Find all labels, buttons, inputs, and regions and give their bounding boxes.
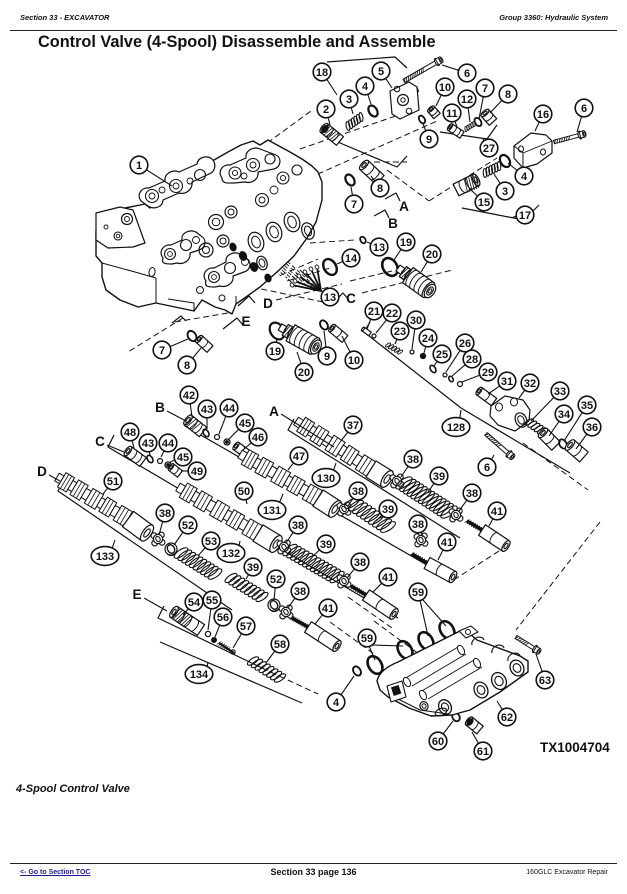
- svg-text:63: 63: [539, 675, 551, 687]
- svg-text:12: 12: [461, 94, 473, 106]
- svg-text:51: 51: [107, 476, 119, 488]
- svg-text:7: 7: [482, 83, 488, 95]
- svg-text:2: 2: [323, 104, 329, 116]
- svg-text:37: 37: [347, 420, 359, 432]
- svg-text:3: 3: [502, 186, 508, 198]
- svg-text:38: 38: [354, 557, 366, 569]
- svg-text:45: 45: [177, 452, 189, 464]
- svg-text:E: E: [241, 314, 250, 329]
- svg-text:53: 53: [205, 536, 217, 548]
- svg-text:A: A: [399, 199, 409, 214]
- svg-text:7: 7: [351, 199, 357, 211]
- svg-text:3: 3: [346, 94, 352, 106]
- svg-text:38: 38: [412, 519, 424, 531]
- svg-text:38: 38: [352, 486, 364, 498]
- svg-text:13: 13: [324, 292, 336, 304]
- svg-text:60: 60: [432, 736, 444, 748]
- svg-text:13: 13: [373, 242, 385, 254]
- svg-text:24: 24: [422, 333, 435, 345]
- svg-text:11: 11: [446, 108, 458, 120]
- svg-text:30: 30: [410, 315, 422, 327]
- svg-text:128: 128: [447, 422, 465, 434]
- svg-text:17: 17: [519, 210, 531, 222]
- svg-text:62: 62: [501, 712, 513, 724]
- svg-text:59: 59: [361, 633, 373, 645]
- svg-text:D: D: [37, 464, 47, 479]
- svg-text:14: 14: [345, 253, 358, 265]
- svg-text:34: 34: [558, 409, 571, 421]
- svg-text:39: 39: [382, 504, 394, 516]
- svg-text:50: 50: [238, 486, 250, 498]
- svg-text:15: 15: [478, 197, 490, 209]
- svg-text:19: 19: [400, 237, 412, 249]
- svg-text:4: 4: [333, 697, 340, 709]
- svg-text:20: 20: [426, 249, 438, 261]
- svg-text:131: 131: [263, 505, 281, 517]
- svg-text:6: 6: [484, 462, 490, 474]
- svg-text:38: 38: [407, 454, 419, 466]
- svg-text:36: 36: [586, 422, 598, 434]
- svg-text:29: 29: [482, 367, 494, 379]
- svg-text:E: E: [132, 587, 141, 602]
- svg-text:47: 47: [293, 451, 305, 463]
- svg-text:7: 7: [159, 345, 165, 357]
- svg-text:27: 27: [483, 143, 495, 155]
- svg-text:25: 25: [436, 349, 448, 361]
- svg-text:38: 38: [159, 508, 171, 520]
- svg-text:48: 48: [124, 427, 136, 439]
- svg-text:42: 42: [183, 390, 195, 402]
- svg-text:32: 32: [524, 378, 536, 390]
- svg-text:41: 41: [491, 506, 503, 518]
- svg-text:132: 132: [222, 548, 240, 560]
- svg-text:B: B: [155, 400, 165, 415]
- svg-text:61: 61: [477, 746, 489, 758]
- svg-text:38: 38: [466, 488, 478, 500]
- svg-text:39: 39: [247, 562, 259, 574]
- svg-text:1: 1: [136, 160, 142, 172]
- svg-text:41: 41: [441, 537, 453, 549]
- svg-text:49: 49: [191, 466, 203, 478]
- svg-text:56: 56: [217, 612, 229, 624]
- svg-text:41: 41: [322, 603, 334, 615]
- svg-text:8: 8: [184, 360, 190, 372]
- svg-text:9: 9: [324, 351, 330, 363]
- svg-text:26: 26: [459, 338, 471, 350]
- svg-text:45: 45: [239, 418, 251, 430]
- svg-text:57: 57: [240, 621, 252, 633]
- svg-text:9: 9: [426, 134, 432, 146]
- svg-text:38: 38: [292, 520, 304, 532]
- svg-text:28: 28: [466, 354, 478, 366]
- svg-text:43: 43: [142, 438, 154, 450]
- svg-text:52: 52: [182, 520, 194, 532]
- svg-text:130: 130: [317, 473, 335, 485]
- svg-text:31: 31: [501, 376, 513, 388]
- svg-text:59: 59: [412, 587, 424, 599]
- svg-text:C: C: [95, 434, 105, 449]
- svg-text:16: 16: [537, 109, 549, 121]
- svg-text:22: 22: [386, 308, 398, 320]
- svg-text:55: 55: [206, 595, 218, 607]
- svg-text:44: 44: [162, 438, 175, 450]
- svg-text:39: 39: [433, 471, 445, 483]
- svg-text:133: 133: [96, 551, 114, 563]
- svg-text:5: 5: [378, 66, 384, 78]
- svg-text:44: 44: [223, 403, 236, 415]
- svg-text:33: 33: [554, 386, 566, 398]
- svg-text:TX1004704: TX1004704: [540, 740, 610, 755]
- svg-text:39: 39: [320, 539, 332, 551]
- svg-text:4: 4: [521, 171, 528, 183]
- svg-text:46: 46: [252, 432, 264, 444]
- svg-text:54: 54: [188, 597, 201, 609]
- svg-text:19: 19: [269, 346, 281, 358]
- svg-text:4: 4: [362, 81, 369, 93]
- svg-text:A: A: [269, 404, 279, 419]
- svg-text:6: 6: [581, 103, 587, 115]
- svg-text:21: 21: [368, 306, 380, 318]
- svg-text:C: C: [346, 291, 356, 306]
- svg-text:58: 58: [274, 639, 286, 651]
- svg-text:35: 35: [581, 400, 593, 412]
- svg-text:38: 38: [294, 586, 306, 598]
- svg-text:41: 41: [382, 572, 394, 584]
- svg-text:52: 52: [270, 574, 282, 586]
- svg-text:6: 6: [464, 68, 470, 80]
- svg-text:D: D: [263, 296, 273, 311]
- svg-text:18: 18: [316, 67, 328, 79]
- svg-text:134: 134: [190, 669, 209, 681]
- svg-text:8: 8: [377, 183, 383, 195]
- svg-text:10: 10: [348, 355, 360, 367]
- svg-text:8: 8: [505, 89, 511, 101]
- svg-text:43: 43: [201, 404, 213, 416]
- svg-text:B: B: [388, 216, 398, 231]
- svg-text:20: 20: [298, 367, 310, 379]
- svg-text:23: 23: [394, 326, 406, 338]
- svg-text:10: 10: [439, 82, 451, 94]
